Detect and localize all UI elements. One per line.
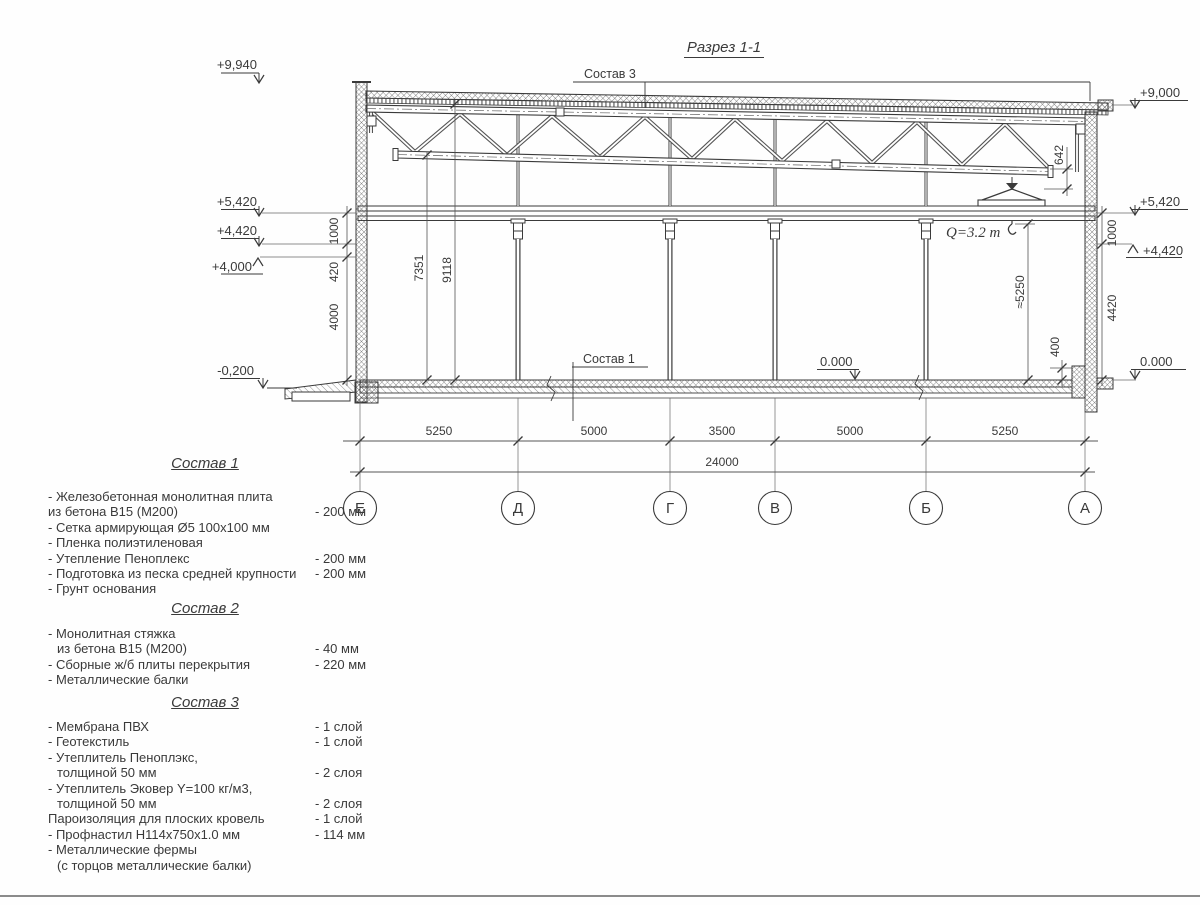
svg-text:24000: 24000 [705, 455, 739, 469]
crane-capacity-label: Q=3.2 т [946, 225, 1000, 241]
composition-1-heading: Состав 1 [40, 455, 370, 472]
elevation-marks-right: +9,000 +5,420 +4,420 0.000 [1126, 85, 1188, 379]
roof-edge-cap [1098, 100, 1113, 111]
svg-text:420: 420 [327, 262, 341, 282]
page-title: Разрез 1-1 [687, 39, 761, 56]
crane-hook [1008, 224, 1016, 234]
svg-text:1000: 1000 [1105, 219, 1119, 246]
list-item: - Профнастил Н114х750х1.0 мм- 114 мм [48, 827, 375, 842]
svg-text:Состав 1: Состав 1 [583, 352, 635, 366]
list-item: - Грунт основания [48, 581, 375, 596]
svg-text:400: 400 [1048, 337, 1062, 357]
composition-3-heading: Состав 3 [40, 694, 370, 711]
dim-chain-right: 1000 4420 [1098, 206, 1120, 386]
left-wall-bracket [367, 116, 376, 126]
svg-text:≈5250: ≈5250 [1013, 275, 1027, 309]
floor-beam-5420 [358, 206, 1095, 221]
svg-text:0.000: 0.000 [820, 354, 853, 369]
list-item: Пароизоляция для плоских кровель- 1 слой [48, 811, 375, 826]
list-item: - Металлические балки [48, 672, 375, 687]
floor [267, 366, 1113, 403]
walls [352, 82, 1097, 412]
list-item: - Сетка армирующая Ø5 100х100 мм [48, 520, 375, 535]
svg-text:0.000: 0.000 [1140, 354, 1173, 369]
list-item: - Утепление Пеноплекс- 200 мм [48, 551, 375, 566]
svg-text:1000: 1000 [327, 217, 341, 244]
svg-text:Состав 3: Состав 3 [584, 67, 636, 81]
svg-text:А: А [1080, 500, 1090, 517]
svg-text:4000: 4000 [327, 303, 341, 330]
svg-text:+5,420: +5,420 [217, 194, 257, 209]
left-wall [356, 82, 367, 402]
list-item: - Утеплитель Эковер Y=100 кг/м3, [48, 781, 375, 796]
svg-text:Д: Д [513, 500, 523, 517]
right-wall [1085, 112, 1097, 412]
svg-text:+4,420: +4,420 [1143, 243, 1183, 258]
list-item: из бетона В15 (М200)- 40 мм [48, 641, 375, 656]
svg-text:9118: 9118 [440, 257, 454, 283]
truss-connector [832, 160, 840, 168]
right-foundation-beam [1072, 366, 1085, 398]
dim-chain-left: 1000 420 4000 [327, 206, 352, 386]
svg-text:Г: Г [666, 500, 674, 517]
composition-2: Состав 2 - Монолитная стяжка из бетона В… [40, 600, 375, 617]
axis-bubbles [344, 492, 1102, 525]
svg-text:+9,940: +9,940 [217, 57, 257, 72]
list-item: - Монолитная стяжка [48, 626, 375, 641]
elevation-mark-mid: 0.000 [817, 354, 860, 379]
list-item: - Геотекстиль- 1 слой [48, 734, 375, 749]
svg-text:5000: 5000 [837, 424, 864, 438]
list-item: - Железобетонная монолитная плита [48, 489, 375, 504]
floor-slab-top [360, 380, 1072, 387]
sheet-frame-line [0, 895, 1200, 897]
svg-text:4420: 4420 [1105, 294, 1119, 321]
svg-text:+5,420: +5,420 [1140, 194, 1180, 209]
svg-text:В: В [770, 500, 780, 517]
dim-hook: ≈5250 [1013, 220, 1035, 385]
axis-letters: Е Д Г В Б А [355, 500, 1090, 517]
list-item: - Утеплитель Пеноплэкс, [48, 750, 375, 765]
list-item: из бетона В15 (М200)- 200 мм [48, 504, 375, 519]
drawing-title: Разрез 1-1 [684, 39, 764, 58]
left-foundation [355, 382, 378, 403]
svg-text:-0,200: -0,200 [217, 363, 254, 378]
svg-text:+4,000: +4,000 [212, 259, 252, 274]
svg-text:+4,420: +4,420 [217, 223, 257, 238]
columns [511, 113, 933, 380]
composition-3: Состав 3 - Мембрана ПВХ- 1 слой - Геотек… [40, 694, 375, 711]
truss-connector [556, 108, 564, 116]
composition-2-heading: Состав 2 [40, 600, 370, 617]
composition-1: Состав 1 - Железобетонная монолитная пли… [40, 455, 375, 472]
axis-grid: 5250 5000 3500 5000 5250 24000 Е Д Г В Б… [343, 398, 1102, 525]
list-item: толщиной 50 мм- 2 слоя [48, 796, 375, 811]
svg-text:7351: 7351 [412, 254, 426, 281]
list-item: - Пленка полиэтиленовая [48, 535, 375, 550]
svg-text:5000: 5000 [581, 424, 608, 438]
svg-text:642: 642 [1052, 145, 1066, 165]
floor-slab-bottom [360, 387, 1072, 393]
svg-text:5250: 5250 [426, 424, 453, 438]
elevation-marks-left: +9,940 +5,420 +4,420 +4,000 -0,200 [212, 57, 268, 388]
list-item: - Сборные ж/б плиты перекрытия- 220 мм [48, 657, 375, 672]
list-item: - Подготовка из песка средней крупности-… [48, 566, 375, 581]
svg-text:Б: Б [921, 500, 931, 517]
roof-truss [366, 105, 1085, 178]
dim-400: 400 [1048, 337, 1072, 386]
svg-text:+9,000: +9,000 [1140, 85, 1180, 100]
svg-text:3500: 3500 [709, 424, 736, 438]
svg-text:5250: 5250 [992, 424, 1019, 438]
level-extension-lines [260, 105, 1136, 380]
list-item: толщиной 50 мм- 2 слоя [48, 765, 375, 780]
list-item: - Металлические фермы [48, 842, 375, 857]
list-item: - Мембрана ПВХ- 1 слой [48, 719, 375, 734]
list-item: (с торцов металлические балки) [48, 858, 375, 873]
right-wall-bracket [1076, 124, 1085, 134]
lower-columns [511, 219, 933, 380]
dim-interior: 7351 9118 [412, 100, 460, 385]
